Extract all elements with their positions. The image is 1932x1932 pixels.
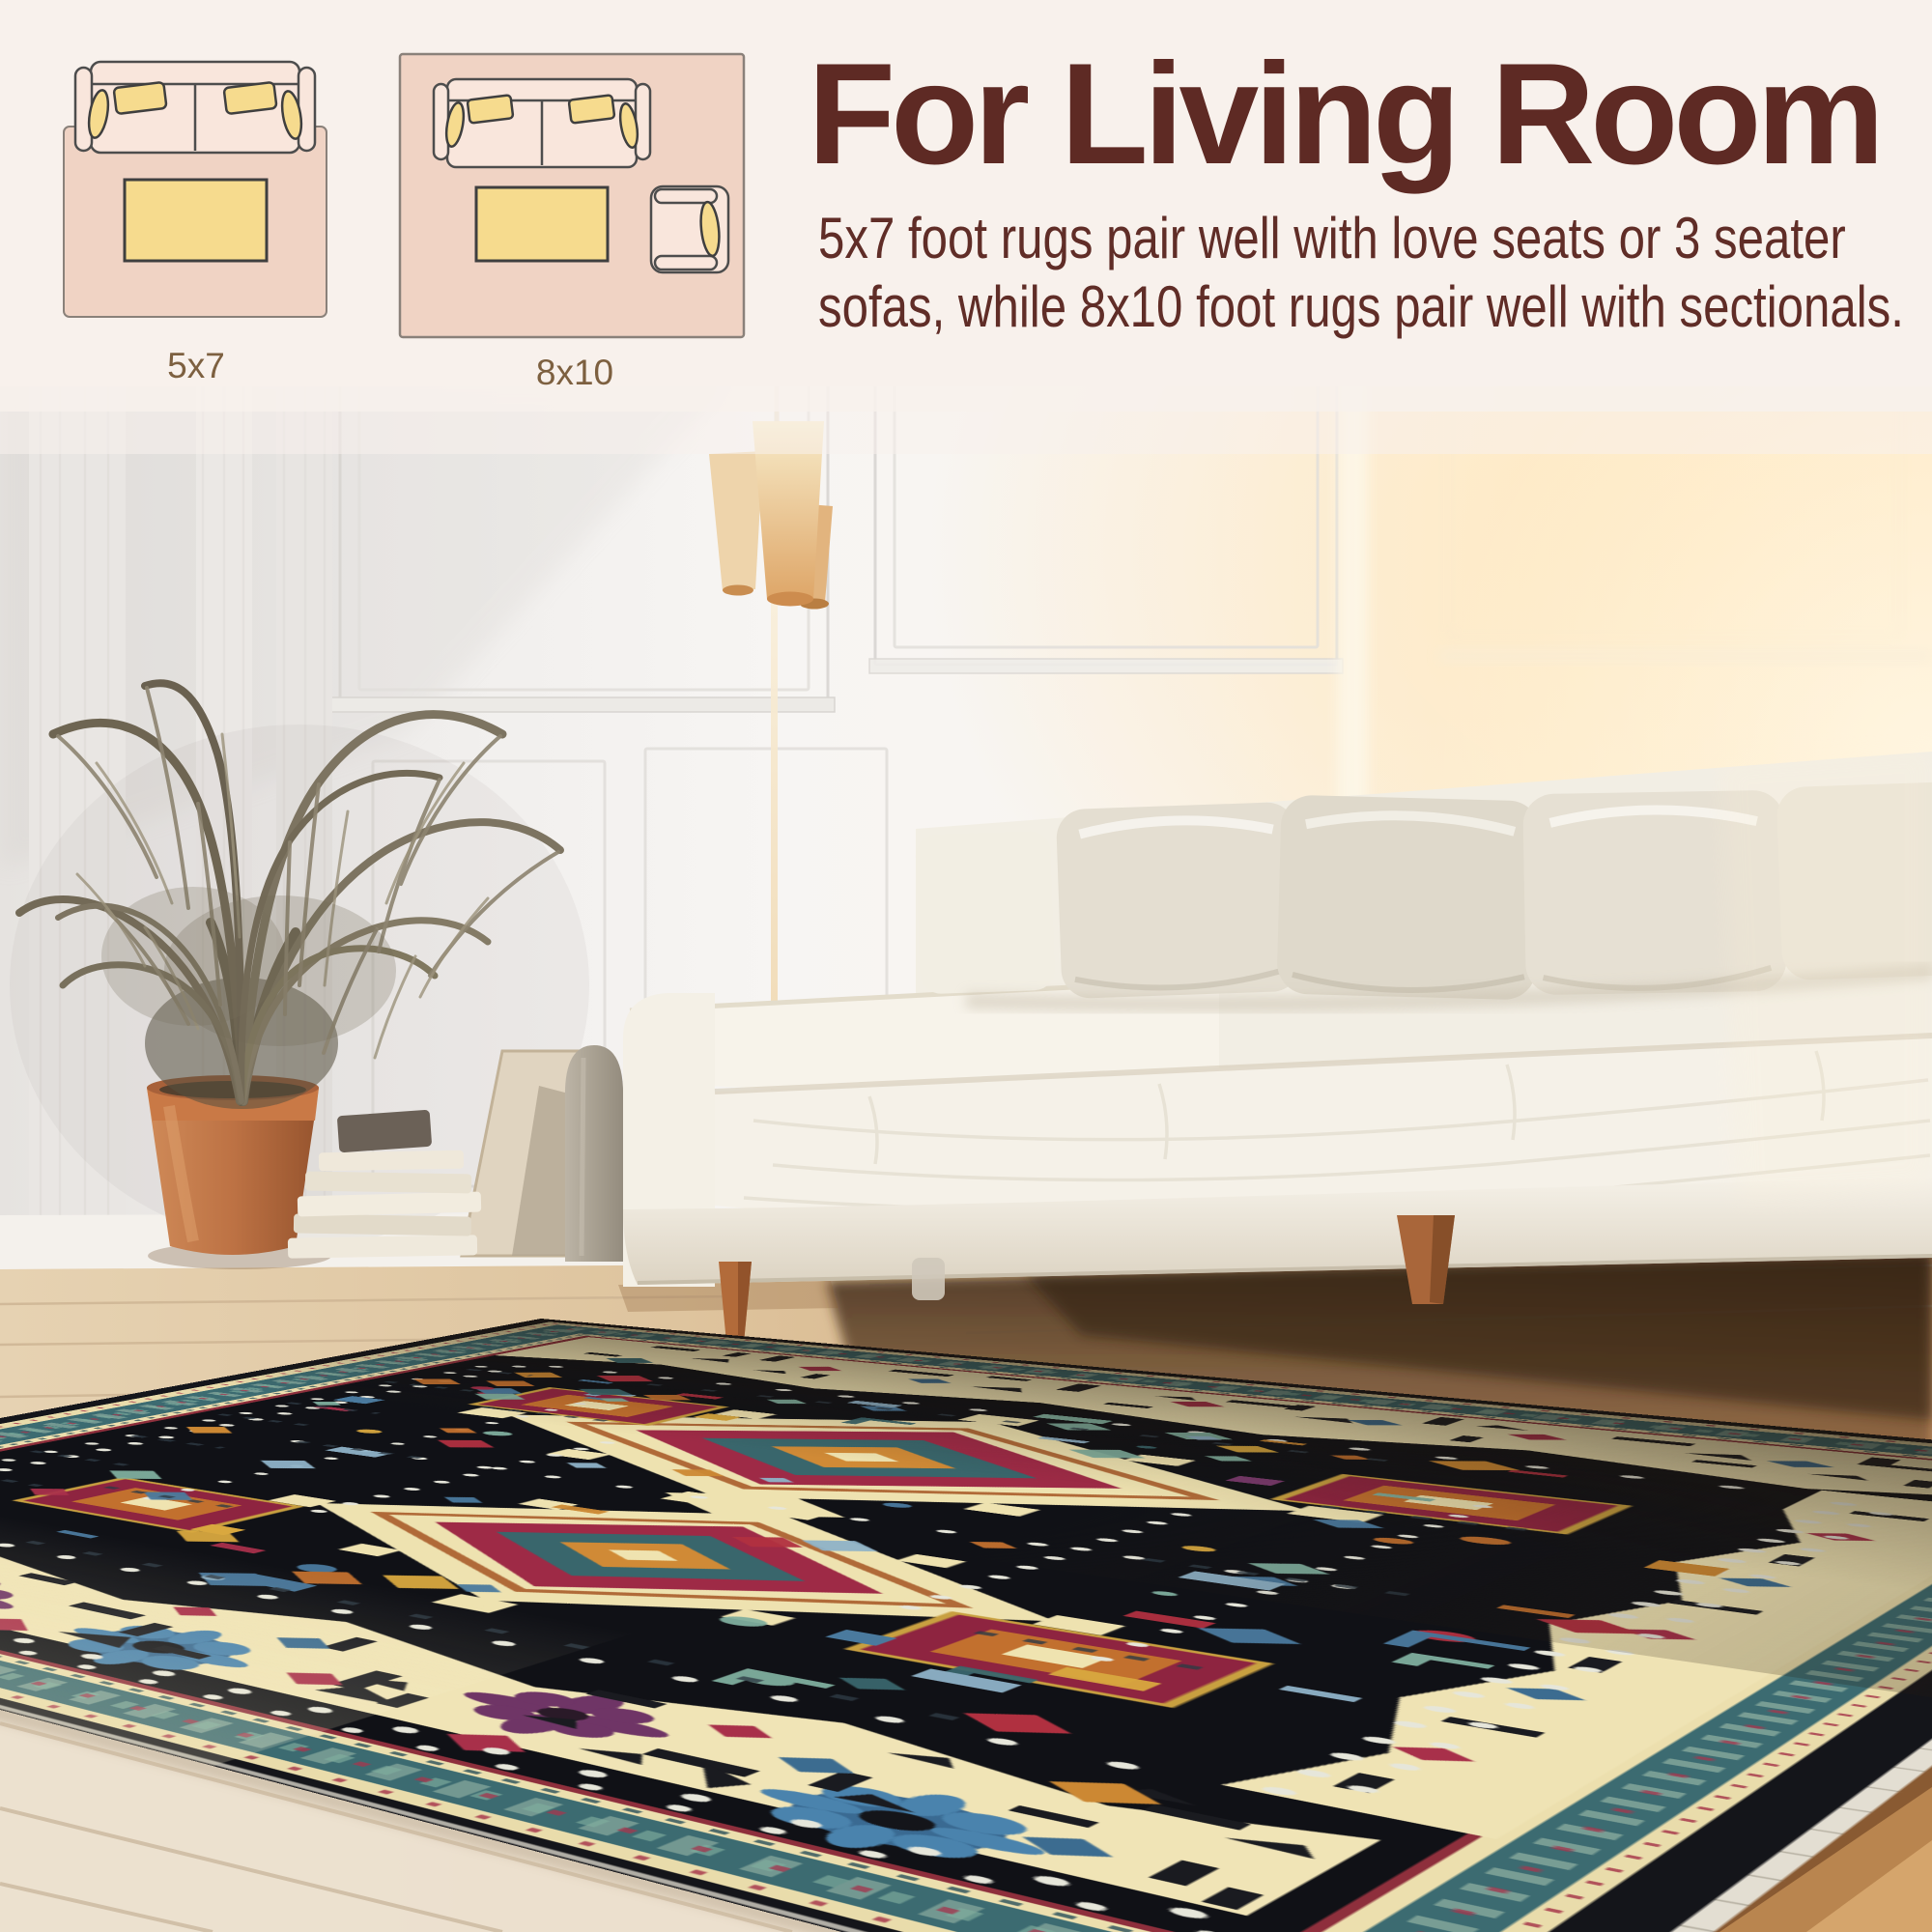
svg-text:8x10: 8x10 [536, 353, 613, 392]
svg-text:5x7: 5x7 [167, 346, 225, 385]
